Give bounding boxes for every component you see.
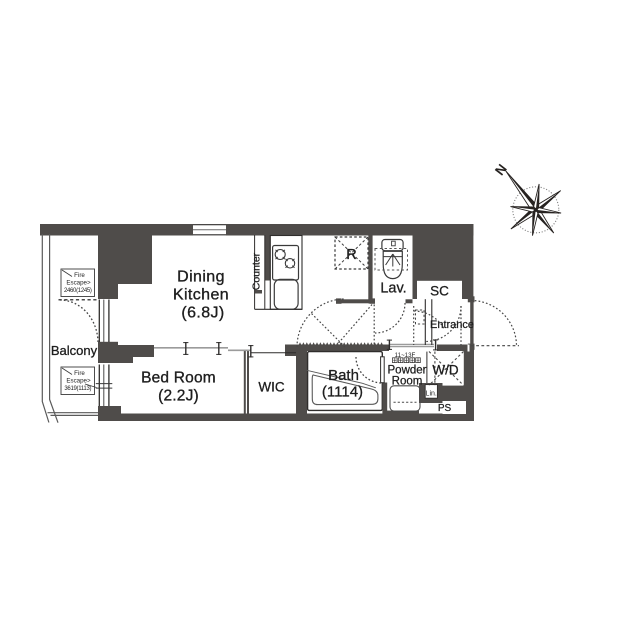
svg-text:Bath: Bath [328,367,359,384]
svg-text:Kitchen: Kitchen [173,287,229,304]
svg-text:Lin.: Lin. [426,391,437,398]
svg-text:Fire: Fire [74,370,85,377]
svg-text:Room: Room [392,376,423,388]
svg-text:Dining: Dining [177,269,225,286]
svg-text:Escape>: Escape> [66,378,91,385]
svg-text:Escape>: Escape> [66,280,91,287]
svg-text:2460(1245): 2460(1245) [64,288,92,294]
svg-text:3619(1113): 3619(1113) [64,386,91,392]
svg-text:PS: PS [438,403,452,414]
svg-text:Lav.: Lav. [380,281,406,297]
svg-text:R: R [346,247,356,263]
svg-text:Bed Room: Bed Room [141,370,216,387]
svg-text:Balcony: Balcony [51,343,98,358]
svg-text:(6.8J): (6.8J) [181,305,224,322]
svg-text:W/D: W/D [432,363,458,378]
svg-text:Counter: Counter [251,252,263,290]
svg-text:SC: SC [430,284,449,299]
svg-text:(2.2J): (2.2J) [158,388,199,405]
svg-text:Fire: Fire [74,272,85,279]
svg-text:WIC: WIC [258,380,284,395]
svg-text:Entrance: Entrance [430,319,474,331]
svg-text:(1114): (1114) [322,384,363,401]
